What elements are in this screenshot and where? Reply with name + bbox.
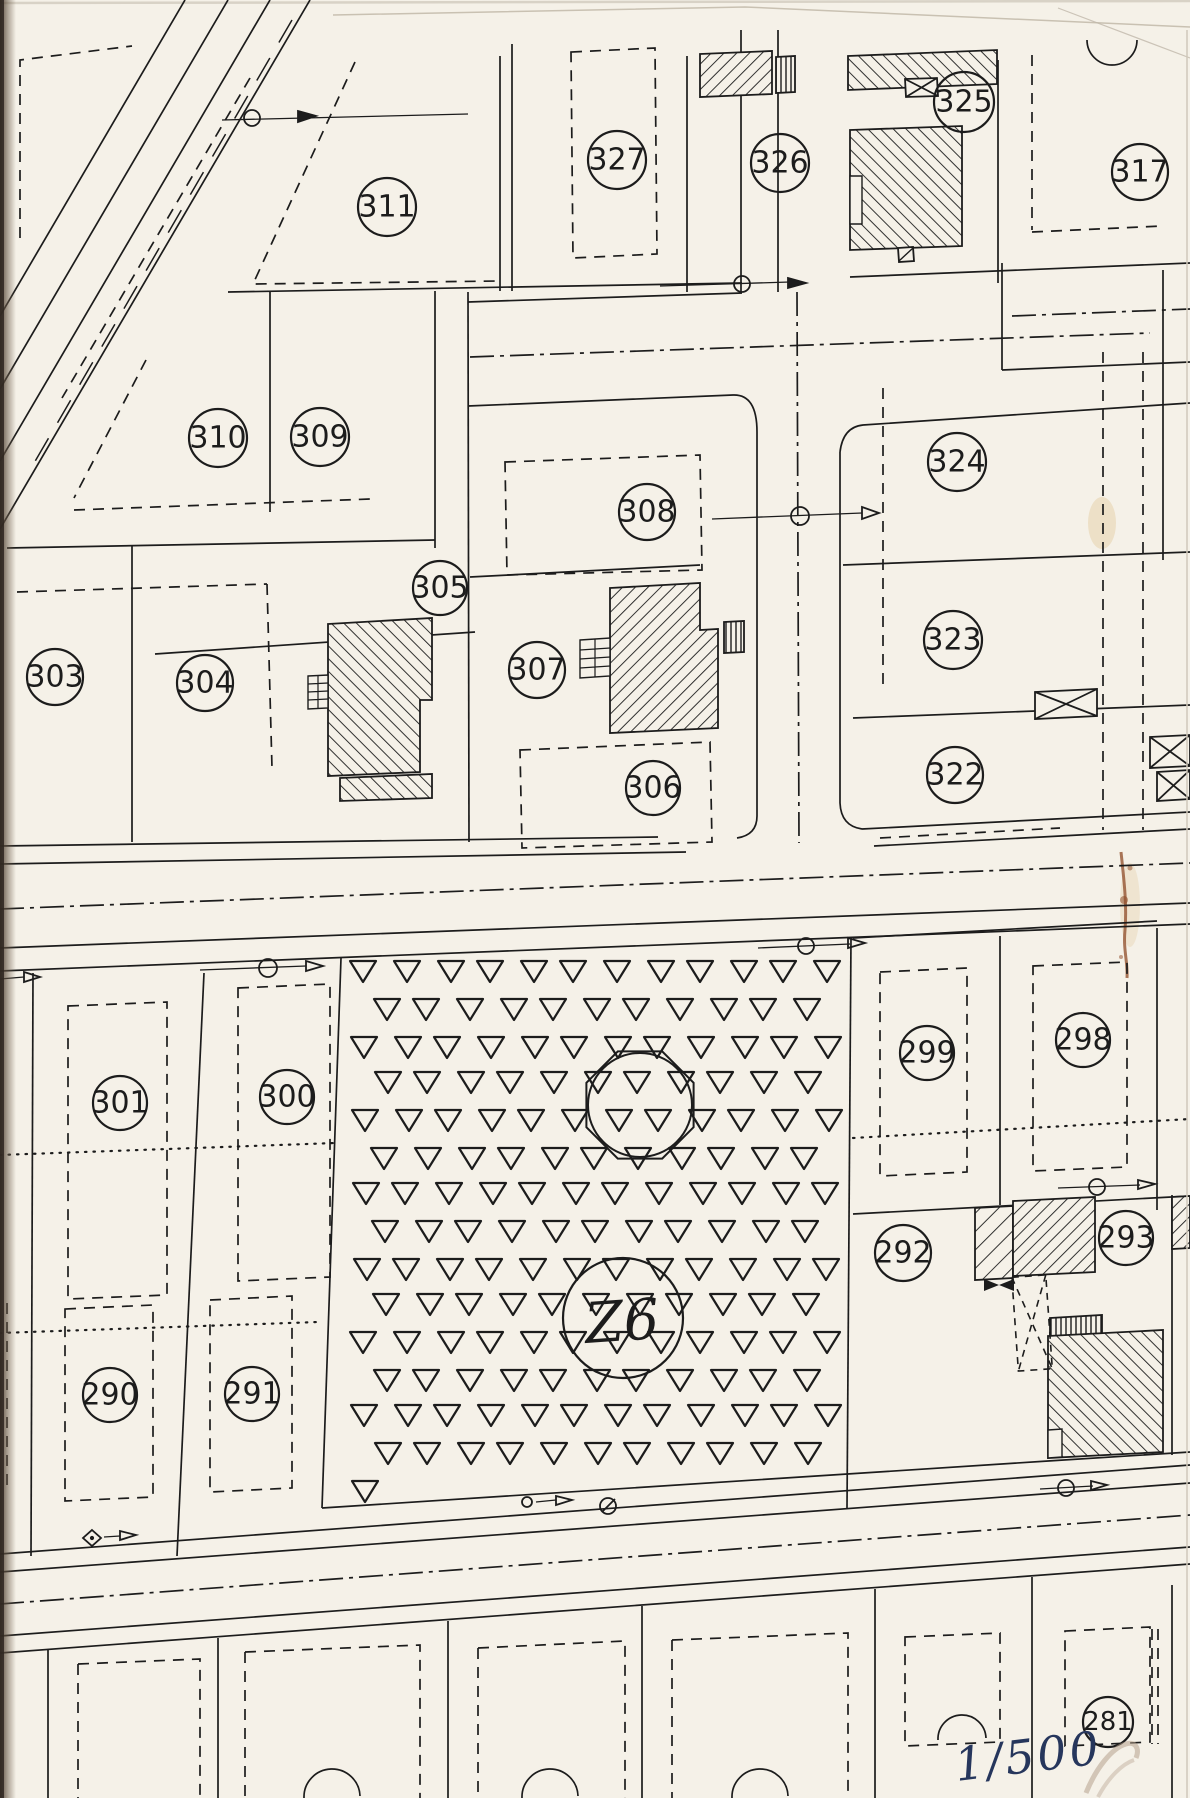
svg-text:303: 303 [26,660,83,695]
svg-text:326: 326 [751,146,808,181]
svg-text:292: 292 [874,1236,931,1271]
scanned-cadastral-map-page: 3113273263253173103093083243053073033043… [0,0,1190,1798]
svg-text:327: 327 [588,143,645,178]
svg-text:308: 308 [618,495,675,530]
svg-text:311: 311 [358,190,415,225]
svg-text:298: 298 [1054,1023,1111,1058]
svg-text:290: 290 [81,1378,138,1413]
svg-text:293: 293 [1097,1221,1154,1256]
svg-text:300: 300 [258,1080,315,1115]
svg-text:301: 301 [91,1086,148,1121]
stairs-307 [580,638,610,678]
building-326 [700,51,772,97]
svg-text:291: 291 [223,1377,280,1412]
building-325 [850,126,962,250]
svg-text:324: 324 [928,445,985,480]
svg-text:310: 310 [189,421,246,456]
building-293 [1048,1330,1163,1458]
svg-text:306: 306 [624,771,681,806]
building-292b [1013,1197,1095,1276]
svg-text:322: 322 [926,758,983,793]
building-305 [328,618,432,776]
svg-text:305: 305 [411,571,468,606]
svg-text:299: 299 [898,1036,955,1071]
stairs-305 [308,675,328,709]
cadastral-map: 3113273263253173103093083243053073033043… [0,0,1190,1798]
yellow-stain [1088,497,1116,549]
zone-label: Z6 [581,1287,662,1357]
svg-text:317: 317 [1111,155,1168,190]
svg-text:325: 325 [935,85,992,120]
svg-text:323: 323 [924,623,981,658]
building-292a [975,1206,1013,1280]
svg-text:309: 309 [291,420,348,455]
svg-text:307: 307 [508,653,565,688]
svg-text:304: 304 [176,666,233,701]
